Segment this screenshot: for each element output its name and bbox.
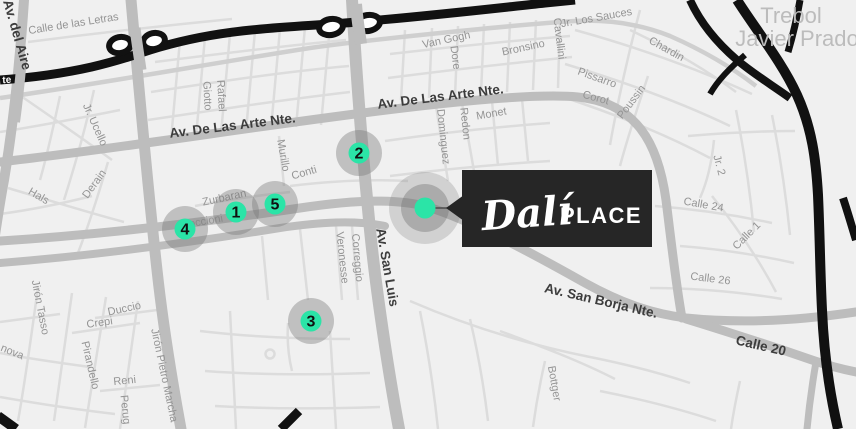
marker-number: 2 [355, 146, 364, 163]
map-canvas[interactable]: Calle de las LetrasAv. del AireteGiottoR… [0, 0, 856, 429]
interchange-loop [142, 31, 167, 51]
marker-number: 1 [232, 205, 241, 222]
map-marker-3[interactable]: 3 [288, 298, 334, 344]
overpass-san-luis [356, 4, 361, 44]
street-label-reni: Reni [113, 374, 137, 388]
marker-number: 4 [181, 222, 190, 239]
marker-number: 3 [307, 314, 316, 331]
place-callout[interactable]: Dalí PLACE [446, 170, 652, 247]
overpass-pietro-marcha [135, 28, 141, 70]
map-marker-5[interactable]: 5 [252, 181, 298, 227]
street-label-rafael: Rafael [214, 80, 228, 112]
street-label-giotto: Giotto [200, 81, 214, 111]
interchange-loop [318, 17, 344, 37]
main-marker-dot[interactable] [415, 198, 436, 219]
map-marker-4[interactable]: 4 [162, 206, 208, 252]
street-label-trebol: Trebol [760, 3, 822, 28]
map-marker-2[interactable]: 2 [336, 130, 382, 176]
map-marker-1[interactable]: 1 [213, 189, 259, 235]
map[interactable]: Calle de las LetrasAv. del AireteGiottoR… [0, 0, 856, 429]
marker-number: 5 [271, 197, 280, 214]
street-label-javier-prado: Javier Prado [735, 26, 856, 51]
interchange-loop [108, 35, 133, 55]
street-label-te: te [2, 75, 12, 86]
callout-subtitle: PLACE [560, 203, 642, 228]
